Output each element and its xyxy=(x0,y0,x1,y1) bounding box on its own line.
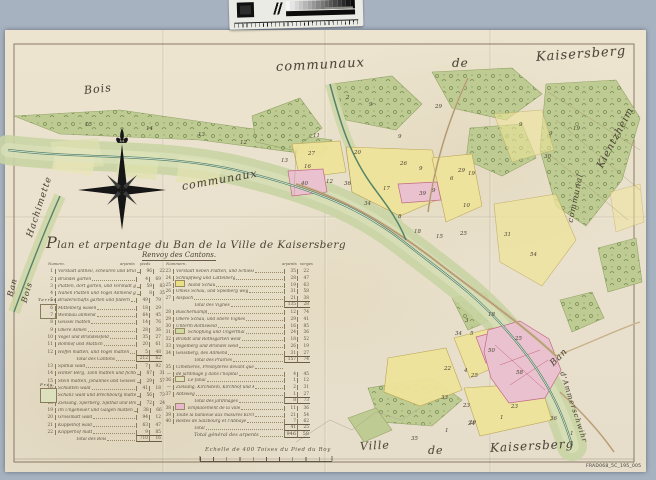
parcel-number: 17 xyxy=(383,186,390,192)
map-label: Terres. xyxy=(38,297,59,302)
parcel-number: 15 xyxy=(436,234,443,240)
map-subtitle: Renvoy des Cantons. xyxy=(142,251,216,261)
parcel-number: 8 xyxy=(398,214,402,220)
parcel-number: 18 xyxy=(414,229,421,235)
parcel-number: 34 xyxy=(364,201,371,207)
col-header-verges: verges xyxy=(300,261,313,266)
table-row: 20Grossmatt wald9412 xyxy=(44,413,162,420)
parcel-number: 26 xyxy=(400,161,407,167)
parcel-number: 25 xyxy=(471,373,478,379)
table-row: 21Kuppelhof wald6347 xyxy=(44,420,162,427)
black-reference-patch xyxy=(237,2,254,17)
parcel-number: 6 xyxy=(450,176,454,182)
parcel-number: 23 xyxy=(463,403,470,409)
parcel-number: 9 xyxy=(519,122,523,128)
parcel-number: 23 xyxy=(511,404,518,410)
parcel-number: 1 xyxy=(500,415,504,421)
parcel-number: 15 xyxy=(85,122,92,128)
table-row: 16Schlatten wald4118 xyxy=(44,384,162,391)
parcel-number: 33 xyxy=(441,395,448,401)
scale-text: Echelle de 400 Toises du Pied du Roy xyxy=(205,447,331,453)
table-row: 10Vogel und Bründelsfeld3527 xyxy=(44,333,162,340)
parcel-number: 36 xyxy=(550,416,557,422)
table-row: 5Bruderschafts gärten und fildern4979 xyxy=(44,296,162,303)
ruler-ticks xyxy=(234,19,358,27)
parcel-number: 12 xyxy=(240,140,247,146)
parcel-number: 9 xyxy=(549,131,553,137)
table-row: 17Schanz wald und Brechbourg matten5673 xyxy=(44,391,162,398)
parcel-number: 9 xyxy=(369,102,373,108)
map-label: Prés. xyxy=(40,382,55,387)
table-row: 4Nahen Platten und Vogel Allmend gärten8… xyxy=(44,289,162,296)
parcel-number: 25 xyxy=(515,336,522,342)
survey-table-right: 23Vorstadt neben Platten, und Schiessber… xyxy=(162,267,310,438)
table-row: 6Mittelberg wasen1829 xyxy=(44,303,162,310)
parcel-number: 30 xyxy=(544,154,551,160)
col-header-arpents: arpents xyxy=(120,261,135,266)
table-row: Total général des arpents94658 xyxy=(162,431,310,438)
table-row: 36Le fanal112 xyxy=(162,377,310,384)
col-header-arpents-2: arpents xyxy=(282,261,297,266)
parcel-number: 54 xyxy=(530,252,537,258)
table-row: 22Klipperhof matt985 xyxy=(44,428,162,435)
table-row: 39Toute la banlieue aux masures Kirchber… xyxy=(162,411,310,418)
map-title: Plan et arpentage du Ban de la Ville de … xyxy=(46,233,346,252)
table-row: 13Spithal wald792 xyxy=(44,362,162,369)
col-header-pieds: pieds xyxy=(140,261,150,266)
table-row: 35Cimetieres, Presbyteres devant que xyxy=(162,363,310,370)
table-row: Total des Vignes13528 xyxy=(162,301,310,308)
table-row: 18Zielsang, Sperberg, Spithal und Brechb… xyxy=(44,398,162,405)
table-row: 12Hoffel matten, und Vogel matten548 xyxy=(44,347,162,354)
parcel-number: 9 xyxy=(432,188,436,194)
parcel-number: 19 xyxy=(573,126,580,132)
table-row: 23Vorstadt neben Platten, und Schiessber… xyxy=(162,267,310,274)
legend-key-swatch-terres xyxy=(40,304,57,319)
map-label: de xyxy=(428,444,444,457)
col-header-numero: Numero. xyxy=(48,261,65,266)
parcel-number: 22 xyxy=(444,366,451,372)
table-row: 28Buscherkampf1274 xyxy=(162,308,310,315)
scanned-map-sheet: Plan et arpentage du Ban de la Ville de … xyxy=(0,0,656,480)
parcel-number: 14 xyxy=(146,126,153,132)
grayscale-calibration-target xyxy=(229,0,364,30)
map-label: de xyxy=(452,56,469,70)
parcel-number: 29 xyxy=(435,104,442,110)
parcel-number: 12 xyxy=(326,179,333,185)
table-row: Total des Cantons21262 xyxy=(44,355,162,362)
table-row: 31Schöpfung und Ungerthal2436 xyxy=(162,329,310,336)
parcel-number: 36 xyxy=(344,181,351,187)
parcel-number: 35 xyxy=(411,436,418,442)
parcel-number: 29 xyxy=(469,420,476,426)
parcel-number: 25 xyxy=(460,231,467,237)
table-row: 26Omeis Schau, und Spielberg weg3158 xyxy=(162,288,310,295)
parcel-number: 27 xyxy=(308,151,315,157)
parcel-number: 31 xyxy=(504,232,511,238)
map-label: Ville xyxy=(360,438,390,453)
parcel-number: 9 xyxy=(398,134,402,140)
parcel-number: 2 xyxy=(346,95,350,101)
table-row: —Zielsang, Kirchstein, Kirchhof und Kirc… xyxy=(162,383,310,390)
table-row: Total des Bois71016 xyxy=(44,435,162,442)
archive-reference-label: FRAD068_5C_195_005 xyxy=(586,464,641,469)
parcel-number: 19 xyxy=(468,171,475,177)
parcel-number: 20 xyxy=(354,150,361,156)
table-row: 1Vorstadt antheil, scheuren und Bründel … xyxy=(44,267,162,274)
parcel-number: 1 xyxy=(445,428,449,434)
table-row: Total des Prairies15774 xyxy=(162,356,310,363)
scale-bar xyxy=(200,457,332,462)
parcel-number: 34 xyxy=(455,331,462,337)
survey-table-left: 1Vorstadt antheil, scheuren und Bründel … xyxy=(44,267,162,442)
solid-black-bar xyxy=(286,9,355,16)
table-row: 33Vogelberg und Bründel weid2619 xyxy=(162,342,310,349)
table-row: 38Emplacement de la ville1136 xyxy=(162,404,310,411)
table-row: 2Bründel gärten469 xyxy=(44,274,162,281)
parcel-number: 13 xyxy=(281,158,288,164)
parcel-number: 58 xyxy=(516,370,523,376)
parcel-number: 1 xyxy=(570,431,574,437)
parcel-number: 50 xyxy=(488,348,495,354)
parcel-number: 29 xyxy=(458,168,465,174)
table-row: 15Stein matten, Johannes und Geissel wal… xyxy=(44,376,162,383)
parcel-number: 4 xyxy=(464,368,468,374)
parcel-number: 5 xyxy=(470,331,474,337)
parcel-number: 18 xyxy=(488,312,495,318)
table-row: 3Platten, dort gärten, und Vorstadt gärt… xyxy=(44,282,162,289)
legend-key-swatch-pres xyxy=(40,388,57,403)
table-row: 19Im Ungeheuer und Galgen matten3866 xyxy=(44,406,162,413)
table-row: 14Hinter Berg, Tann matten und fichten w… xyxy=(44,369,162,376)
parcel-number: 10 xyxy=(463,203,470,209)
parcel-number: 13 xyxy=(198,132,205,138)
parcel-number: 9 xyxy=(419,166,423,172)
parcel-number: 11 xyxy=(313,133,320,139)
table-row: 11Bomhof und Mattich2061 xyxy=(44,340,162,347)
parcel-number: 39 xyxy=(419,191,426,197)
table-row: 8Geissel matten1476 xyxy=(44,318,162,325)
parcel-number: 40 xyxy=(301,181,308,187)
table-row: 25Aland Schau1963 xyxy=(162,281,310,288)
col-header-nummern: Nummern. xyxy=(166,261,187,266)
table-row: 32Brandt und Rothsgarten weid1852 xyxy=(162,335,310,342)
parcel-number: 16 xyxy=(304,164,311,170)
table-row: 9Obere Almen2836 xyxy=(44,325,162,332)
double-bar-mark xyxy=(273,2,283,14)
table-row: 7Weinbau allmend6445 xyxy=(44,311,162,318)
parcel-number: 3 xyxy=(465,318,469,324)
table-row: 29Obere Schau, und obere Vignes2941 xyxy=(162,315,310,322)
